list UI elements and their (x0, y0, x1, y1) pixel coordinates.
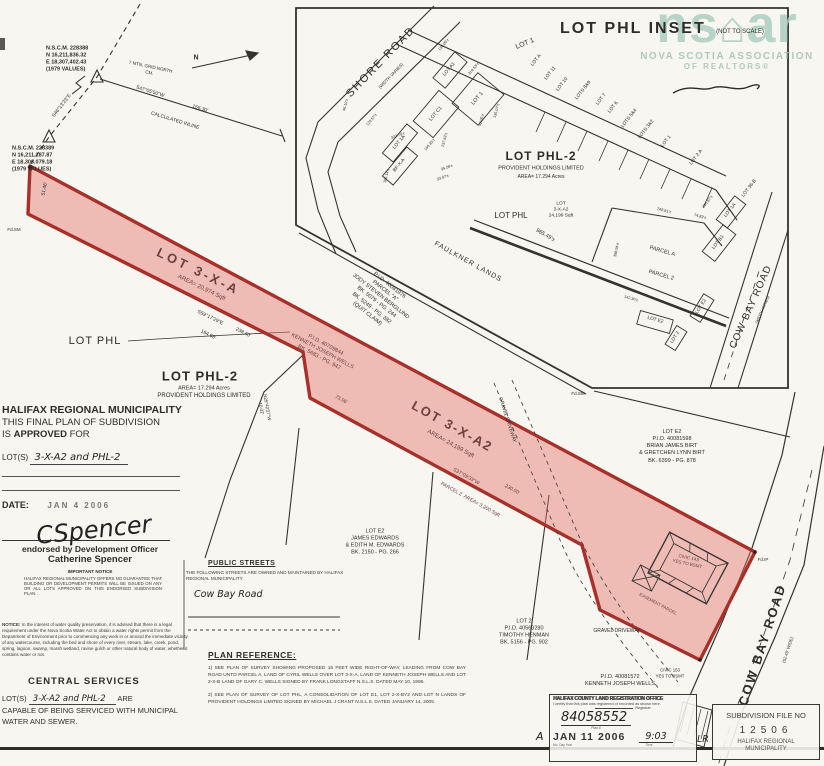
plan-label: N25°42'27"W 10.02' (256, 394, 272, 422)
plan-reference-item-1: 1) SEE PLAN OF SURVEY SHOWING PROPOSED 1… (208, 666, 466, 687)
plan-number-label: Plan # (561, 726, 631, 730)
plan-label: CIVIC 153 YES TO BSMT (656, 667, 685, 678)
plan-label: CALCULATED INLINE (150, 111, 200, 132)
plan-label: 42.05'± (478, 113, 486, 126)
plan-label: S59°17'29"E (196, 309, 224, 327)
plan-label: 237.83'± (441, 132, 449, 147)
approval-heading: HALIFAX REGIONAL MUNICIPALITY (2, 404, 190, 416)
subdivision-file-footer: HALIFAX REGIONALMUNICIPALITY (713, 739, 819, 752)
margin-handwriting-right: LR (697, 734, 709, 745)
watermark-line1: NOVA SCOTIA ASSOCIATION (632, 51, 822, 62)
plan-label: PARCEL A (648, 245, 675, 259)
plan-label: LOT A1 (442, 62, 457, 78)
plan-label: LOT 11 (544, 66, 558, 82)
plan-label: LOT E2 P.I.D. 40081598 BRIAN JAMES BIRT … (639, 429, 705, 465)
plan-label: LOT A (530, 54, 543, 68)
plan-label: LOT E2 JAMES EDWARDS & EDITH M. EDWARDS … (346, 529, 405, 558)
plan-label: 51.46' (40, 182, 49, 197)
plan-label: GRAVEL DRIVEWAY (593, 628, 640, 635)
plan-label: 166.14'± (383, 168, 391, 183)
plan-label: 7 MTN. GRID NORTH CM. (127, 60, 173, 81)
plan-label: LOT PHL-2 (162, 369, 238, 386)
plan-label: LOT PHL-2 (506, 149, 577, 165)
plan-label: 155.87'± (702, 195, 715, 209)
plan-label: LOT 7 (595, 93, 608, 107)
central-services-lots-handwritten: 3-X-A2 and PHL-2 (29, 694, 116, 705)
margin-handwriting-left: A (536, 730, 544, 743)
plan-label: LOT 1 (514, 36, 535, 52)
plan-label: BF-X-A (393, 158, 408, 174)
approval-lots-handwritten: 3-X-A2 and PHL-2 (30, 452, 128, 465)
street-name-handwritten: Cow Bay Road (194, 589, 344, 600)
plan-label: 142.30'± (623, 295, 638, 304)
plan-label: 965.49'± (534, 228, 556, 244)
plan-label: N.S.C.M. 228389 N 16,211,187.87 E 18,306… (12, 146, 54, 175)
plan-label: N (193, 53, 198, 62)
survey-plan-page: N.S.C.M. 228388 N 16,211,836.32 E 18,307… (0, 0, 824, 766)
plan-label: LOT PHL (69, 334, 122, 348)
registration-date-row: JAN 11 2006 Mo. Day Year 9:03 Time (553, 731, 693, 747)
plan-label: LOT 1 (470, 91, 485, 107)
watermark-line2: OF REALTORS® (632, 62, 822, 71)
plan-label: LOT PHL (494, 211, 527, 221)
plan-label: Fd.SM (571, 391, 584, 397)
plan-label: LOTS 8&9 (575, 80, 594, 101)
plan-reference-item-2: 2) SEE PLAN OF SURVEY OF LOT PHL, A CONS… (208, 693, 466, 707)
plan-label: Fd.SM (7, 227, 20, 233)
plan-label: LOTS 5&4 (621, 108, 640, 129)
plan-label: LOTS 3&2 (638, 119, 657, 140)
plan-label: COW BAY ROAD (735, 582, 790, 708)
plan-label: LOT E2 (646, 316, 664, 327)
plan-label: PROVIDENT HOLDINGS LIMITED (498, 165, 583, 172)
plan-label: 156.30' (191, 104, 208, 115)
approval-lots-row: LOT(S) 3-X-A2 and PHL-2 (2, 452, 190, 463)
plan-label: S37°09'33"W (452, 467, 481, 487)
inset-title-text: LOT PHL INSET (560, 20, 706, 37)
officer-name: Catherine Spencer (2, 554, 178, 565)
plan-label: GRAVEL DRIVEWAY (497, 397, 518, 444)
plan-label: PARCEL 2 AREA= 3,200 Sqft (439, 481, 501, 519)
central-services-title: CENTRAL SERVICES (28, 676, 188, 687)
plan-label: 139.00'± (437, 38, 450, 52)
plan-label: LOT 2 (670, 331, 682, 346)
plan-label: 398.94'± (613, 242, 621, 257)
inset-title: LOT PHL INSET (NOT TO SCALE) (560, 20, 764, 38)
time-caption: Time (625, 743, 672, 747)
plan-label: LOT 1A (723, 203, 738, 220)
plan-label: P.I.D. 40709844 KENNETH JOSEPH WELLS BK.… (286, 326, 358, 378)
plan-label: LOT B1 (711, 235, 726, 252)
plan-label: LOT 1 (660, 135, 673, 149)
inset-subtitle-text: (NOT TO SCALE) (716, 29, 764, 35)
signature-block: CSpencer endorsed by Development Officer… (2, 514, 188, 596)
subdivision-file-title: SUBDIVISION FILE NO (713, 711, 819, 720)
plan-label: S46°13'23"E (51, 93, 73, 119)
registration-stamp-box: HALIFAX COUNTY LAND REGISTRATION OFFICE … (549, 694, 697, 762)
central-services-body: CAPABLE OF BEING SERVICED WITH MUNICIPAL… (2, 706, 188, 728)
plan-label: LOT 3-X-A2 24,199 Sqft (549, 202, 574, 221)
plan-reference-title: PLAN REFERENCE: (208, 650, 466, 660)
plan-label: AREA= 17.294 Acres (178, 385, 230, 392)
plan-number-handwritten: 84058552 (561, 710, 631, 726)
plan-label: COW BAY ROAD (727, 263, 775, 350)
plan-label: LOT 10 (556, 77, 571, 93)
blank-line (2, 477, 180, 491)
plan-reference-block: PLAN REFERENCE: 1) SEE PLAN OF SURVEY SH… (208, 650, 466, 707)
plan-label: CIVIC 143 YES TO BSMT (672, 552, 704, 570)
plan-label: 46.10'± (342, 98, 350, 111)
plan-label: EASEMENT PARCEL (638, 592, 677, 616)
blank-line (2, 463, 180, 477)
plan-label: S47°05'50"W (135, 85, 165, 100)
plan-label: 135.07'± (493, 103, 501, 118)
plan-label: LOT 2-A (689, 149, 705, 167)
plan-label: P.I.D. 40081976 PARCEL "A" JODY STEVEN B… (337, 262, 419, 339)
plan-label: LOT C1 (428, 105, 444, 123)
public-streets-body: THE FOLLOWING STREETS ARE OWNED AND MAIN… (186, 570, 344, 583)
plan-label: LOT 36-B (741, 179, 759, 199)
public-streets-title: PUBLIC STREETS (208, 560, 344, 567)
plan-label: 319.53'± (467, 62, 480, 76)
plan-label: FAULKNER LANDS (432, 240, 503, 285)
subdivision-file-box: SUBDIVISION FILE NO 12506 HALIFAX REGION… (712, 704, 820, 760)
plan-label: 120.67'± (365, 113, 378, 127)
endorsed-by-label: endorsed by Development Officer (2, 544, 178, 554)
approval-block: HALIFAX REGIONAL MUNICIPALITY THIS FINAL… (2, 404, 190, 510)
plan-label: P.I.D. 40081572 KENNETH JOSEPH WELLS (585, 674, 655, 688)
plan-label: 73.06' (334, 394, 349, 406)
approval-date-stamp: JAN 4 2006 (47, 501, 110, 510)
plan-label: 164.68' (199, 329, 216, 342)
public-streets-block: PUBLIC STREETS THE FOLLOWING STREETS ARE… (186, 560, 344, 600)
approval-subheading: THIS FINAL PLAN OF SUBDIVISION (2, 417, 190, 428)
plan-label: AREA= 17.294 Acres (517, 174, 564, 181)
plan-label: 238.40' (234, 327, 251, 340)
important-notice-body: HALIFAX REGIONAL MUNICIPALITY OFFERS NO … (24, 576, 162, 596)
plan-label: PARCEL 2 (648, 269, 675, 283)
plan-label: 74.83'± (693, 213, 706, 221)
plan-label: Fd.IP (758, 557, 769, 563)
plan-label: LOT 6 (607, 101, 620, 115)
central-services-lots-row: LOT(S) 3-X-A2 and PHL-2 ARE (2, 694, 188, 704)
date-caption: Mo. Day Year (553, 743, 625, 747)
water-notice: NOTICE: In the interest of water quality… (2, 622, 188, 658)
registration-date-stamp: JAN 11 2006 (553, 731, 625, 743)
subdivision-file-number: 12506 (713, 725, 819, 736)
plan-label: 230.00' (503, 483, 520, 497)
plan-label: N.S.C.M. 228388 N 16,211,836.32 E 18,307… (46, 46, 88, 75)
plan-label: LOT 2 P.I.D. 40563280 TIMOTHY HENMAN BK.… (499, 619, 549, 648)
important-notice-title: IMPORTANT NOTICE (2, 569, 178, 574)
central-services-block: CENTRAL SERVICES LOT(S) 3-X-A2 and PHL-2… (2, 676, 188, 728)
plan-label: 35.28'± (440, 164, 453, 173)
approval-approved-for: IS APPROVED FOR (2, 429, 190, 440)
plan-label: (52.49' WIDE) (781, 636, 795, 663)
registration-time-handwritten: 9:03 (639, 731, 672, 743)
plan-label: PROVIDENT HOLDINGS LIMITED (157, 393, 250, 401)
plan-label: 166.35'± (423, 138, 436, 152)
plan-label: 33.97'± (436, 174, 449, 183)
plan-label: LOT E2 (695, 298, 709, 315)
plan-label: 248.81'± (656, 207, 671, 215)
